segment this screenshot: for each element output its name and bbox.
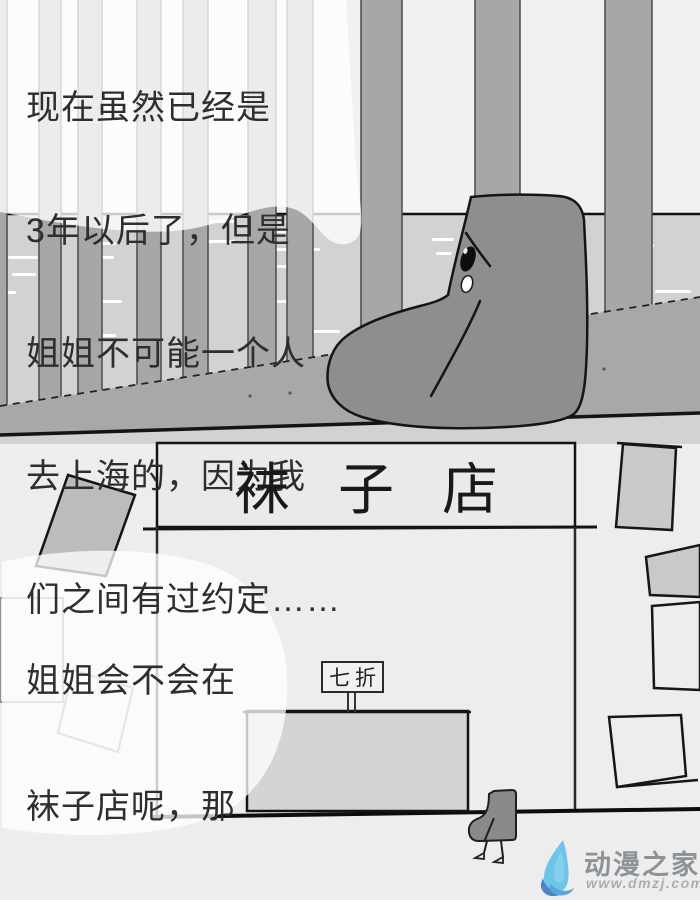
watermark: 动漫之家 www.dmzj.com [540,837,700,899]
watermark-url: www.dmzj.com [586,875,700,891]
narration-line: 3年以后了，但是 [26,211,341,252]
comic-page: 现在虽然已经是 3年以后了，但是 姐姐不可能一个人 去上海的，因为我 们之间有过… [0,0,700,900]
narration-bottom: 姐姐会不会在 袜子店呢，那 是我们童年一 起度过的地方 …… [26,576,236,900]
flame-logo-icon [540,837,580,899]
box [609,715,686,787]
box [616,444,676,530]
railing-post [605,0,652,312]
narration-line: 姐姐不可能一个人 [26,334,341,375]
narration-line: 现在虽然已经是 [26,88,341,129]
narration-line: 姐姐会不会在 [26,660,236,702]
box [652,602,700,690]
stacked-boxes [609,443,700,787]
store-sign-text: 袜子店 [157,443,575,527]
railing-post [361,0,402,350]
small-sock-figure [469,790,516,863]
narration-line: 袜子店呢，那 [26,786,236,828]
discount-sign: 七折 [321,661,384,693]
box [646,545,700,597]
